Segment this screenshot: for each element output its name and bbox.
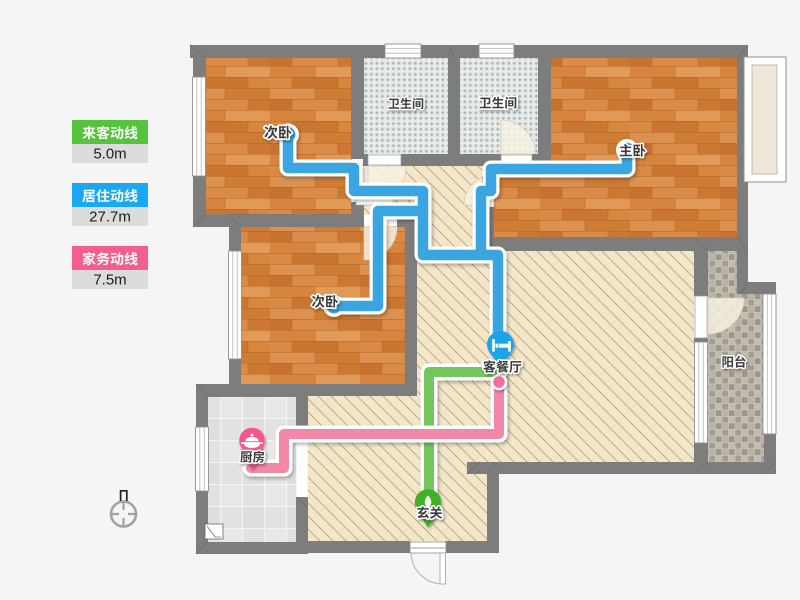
svg-text:7.5m: 7.5m	[93, 272, 126, 289]
svg-text:27.7m: 27.7m	[89, 209, 131, 226]
svg-text:5.0m: 5.0m	[93, 146, 126, 163]
